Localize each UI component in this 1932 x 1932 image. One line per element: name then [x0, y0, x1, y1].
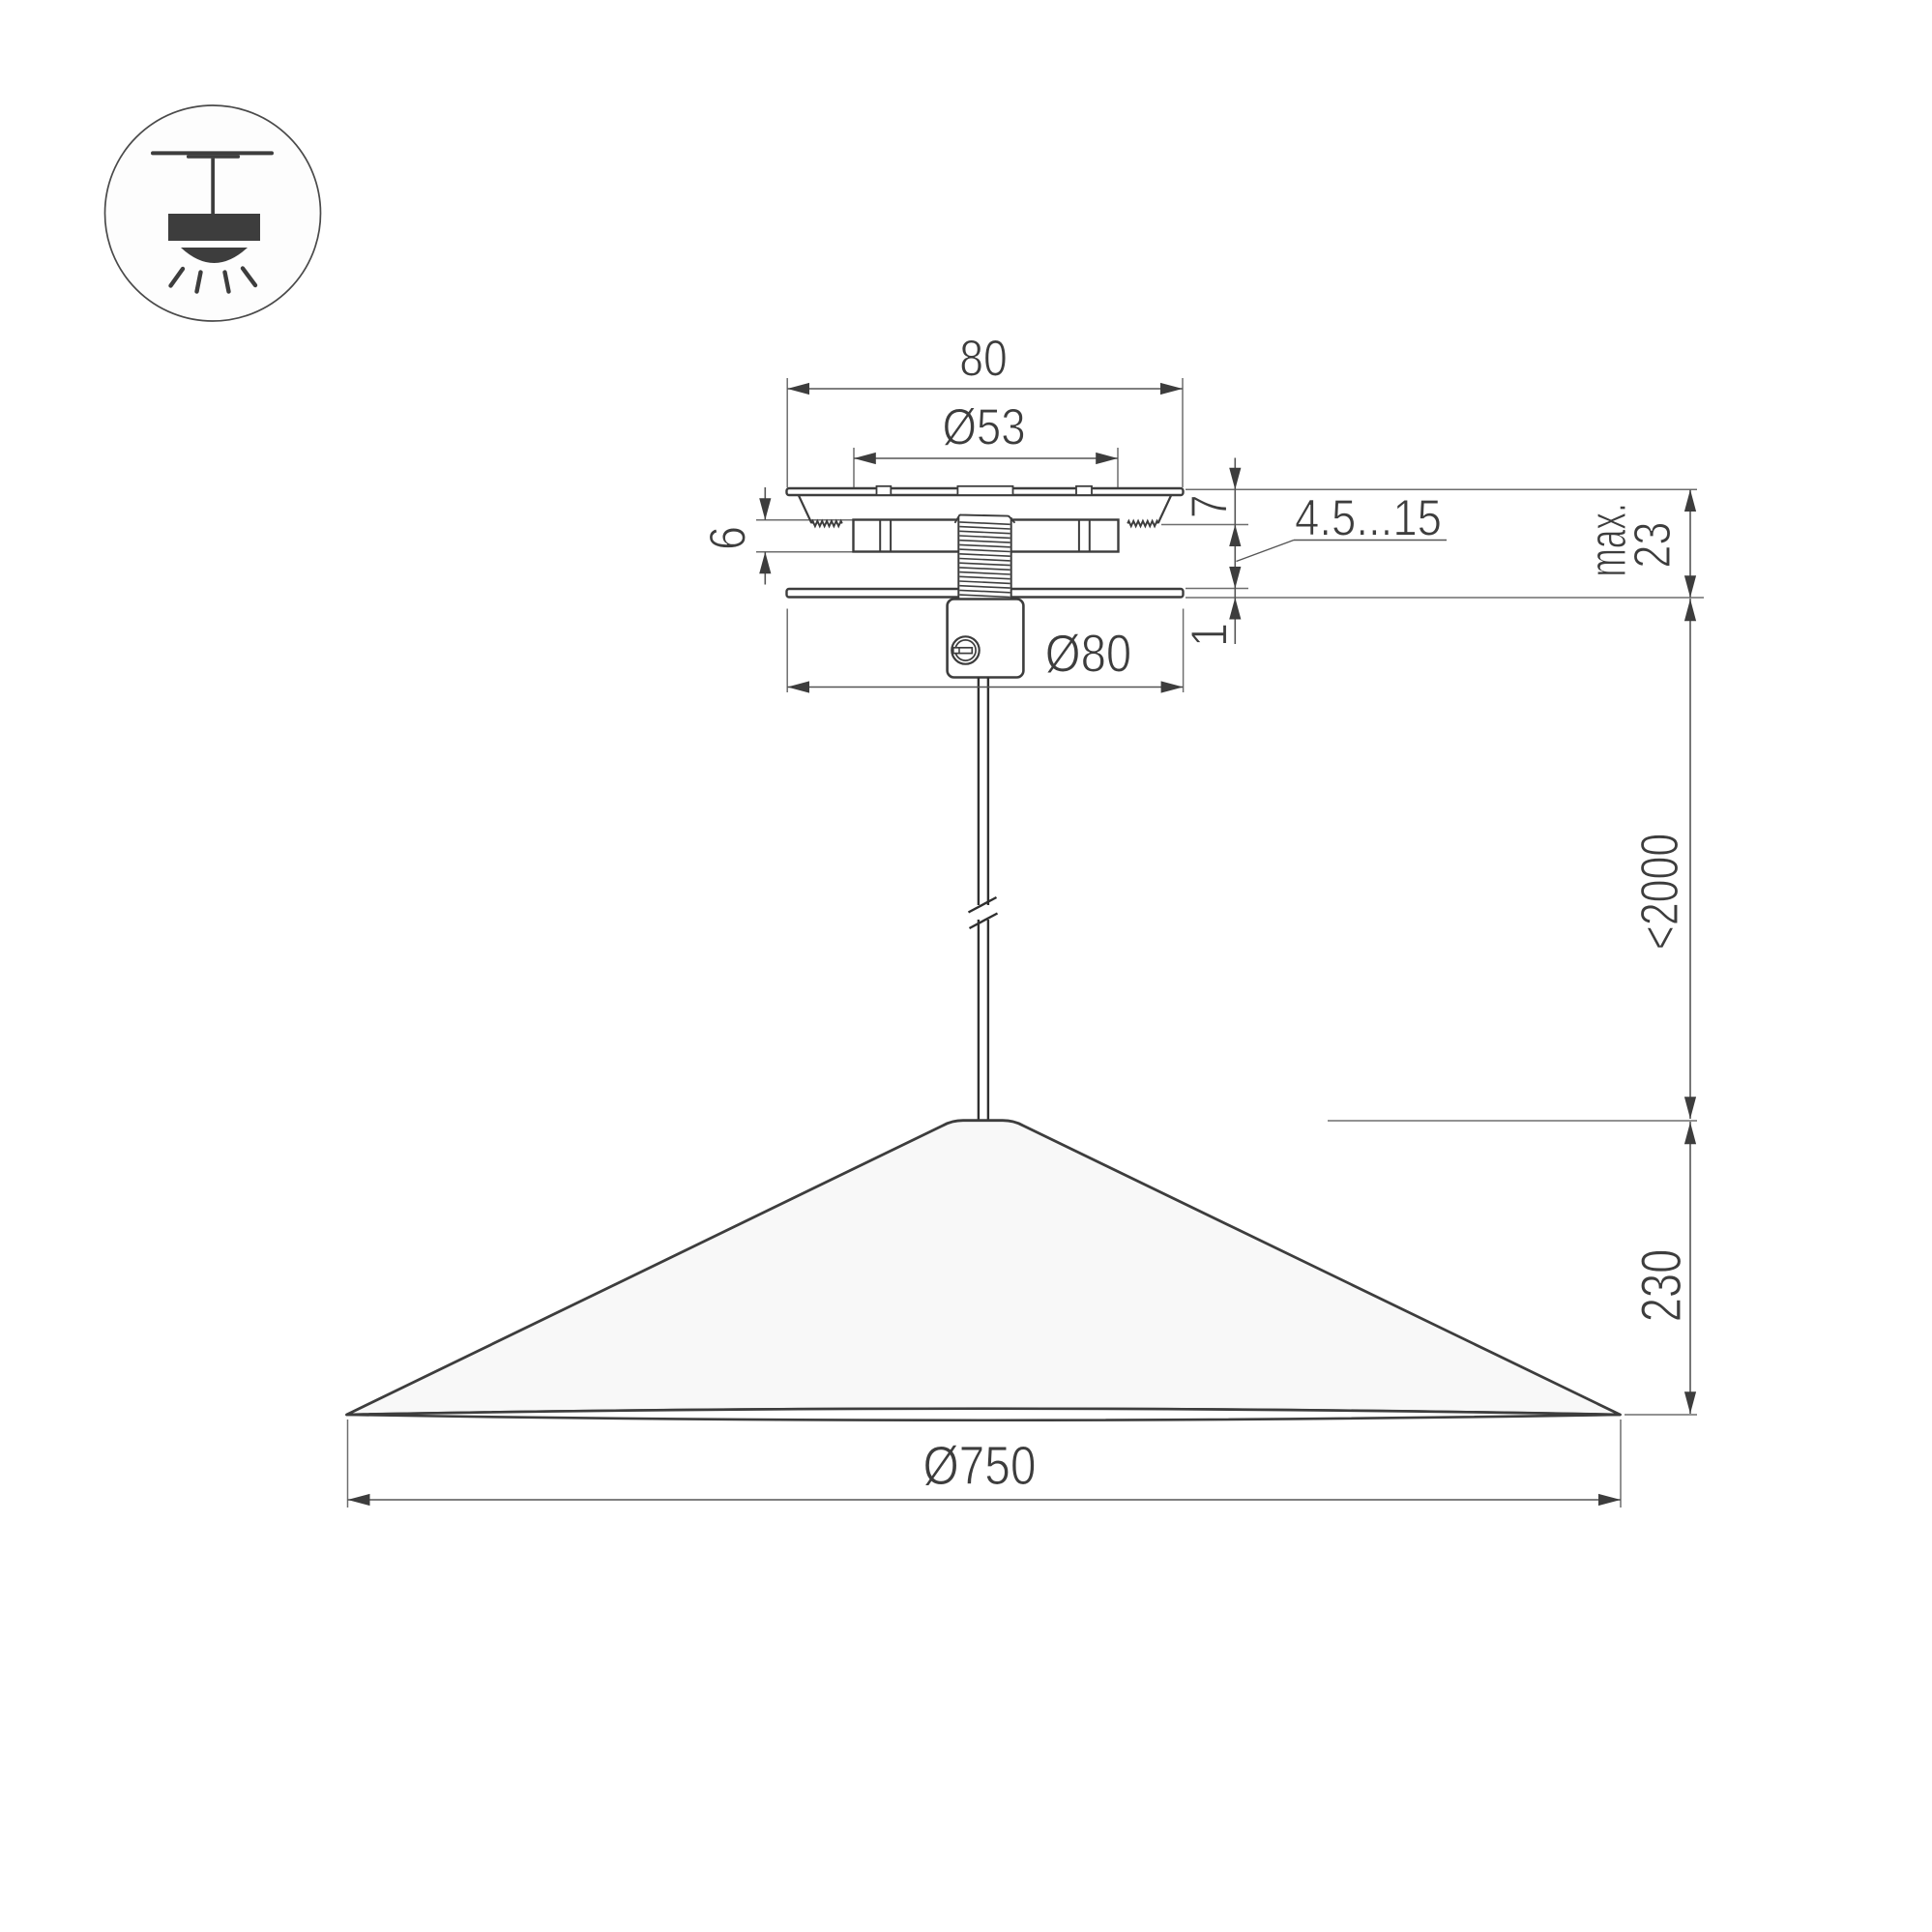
svg-text:6: 6: [700, 526, 756, 550]
svg-text:230: 230: [1631, 1249, 1694, 1322]
svg-text:4.5...15: 4.5...15: [1295, 490, 1442, 547]
svg-text:Ø750: Ø750: [922, 1435, 1036, 1497]
svg-text:Ø53: Ø53: [942, 399, 1025, 456]
svg-text:80: 80: [959, 331, 1008, 387]
svg-text:<2000: <2000: [1630, 834, 1689, 950]
svg-text:1: 1: [1182, 623, 1238, 647]
svg-text:Ø80: Ø80: [1045, 624, 1131, 683]
svg-text:23: 23: [1625, 522, 1683, 569]
svg-text:7: 7: [1182, 494, 1238, 518]
